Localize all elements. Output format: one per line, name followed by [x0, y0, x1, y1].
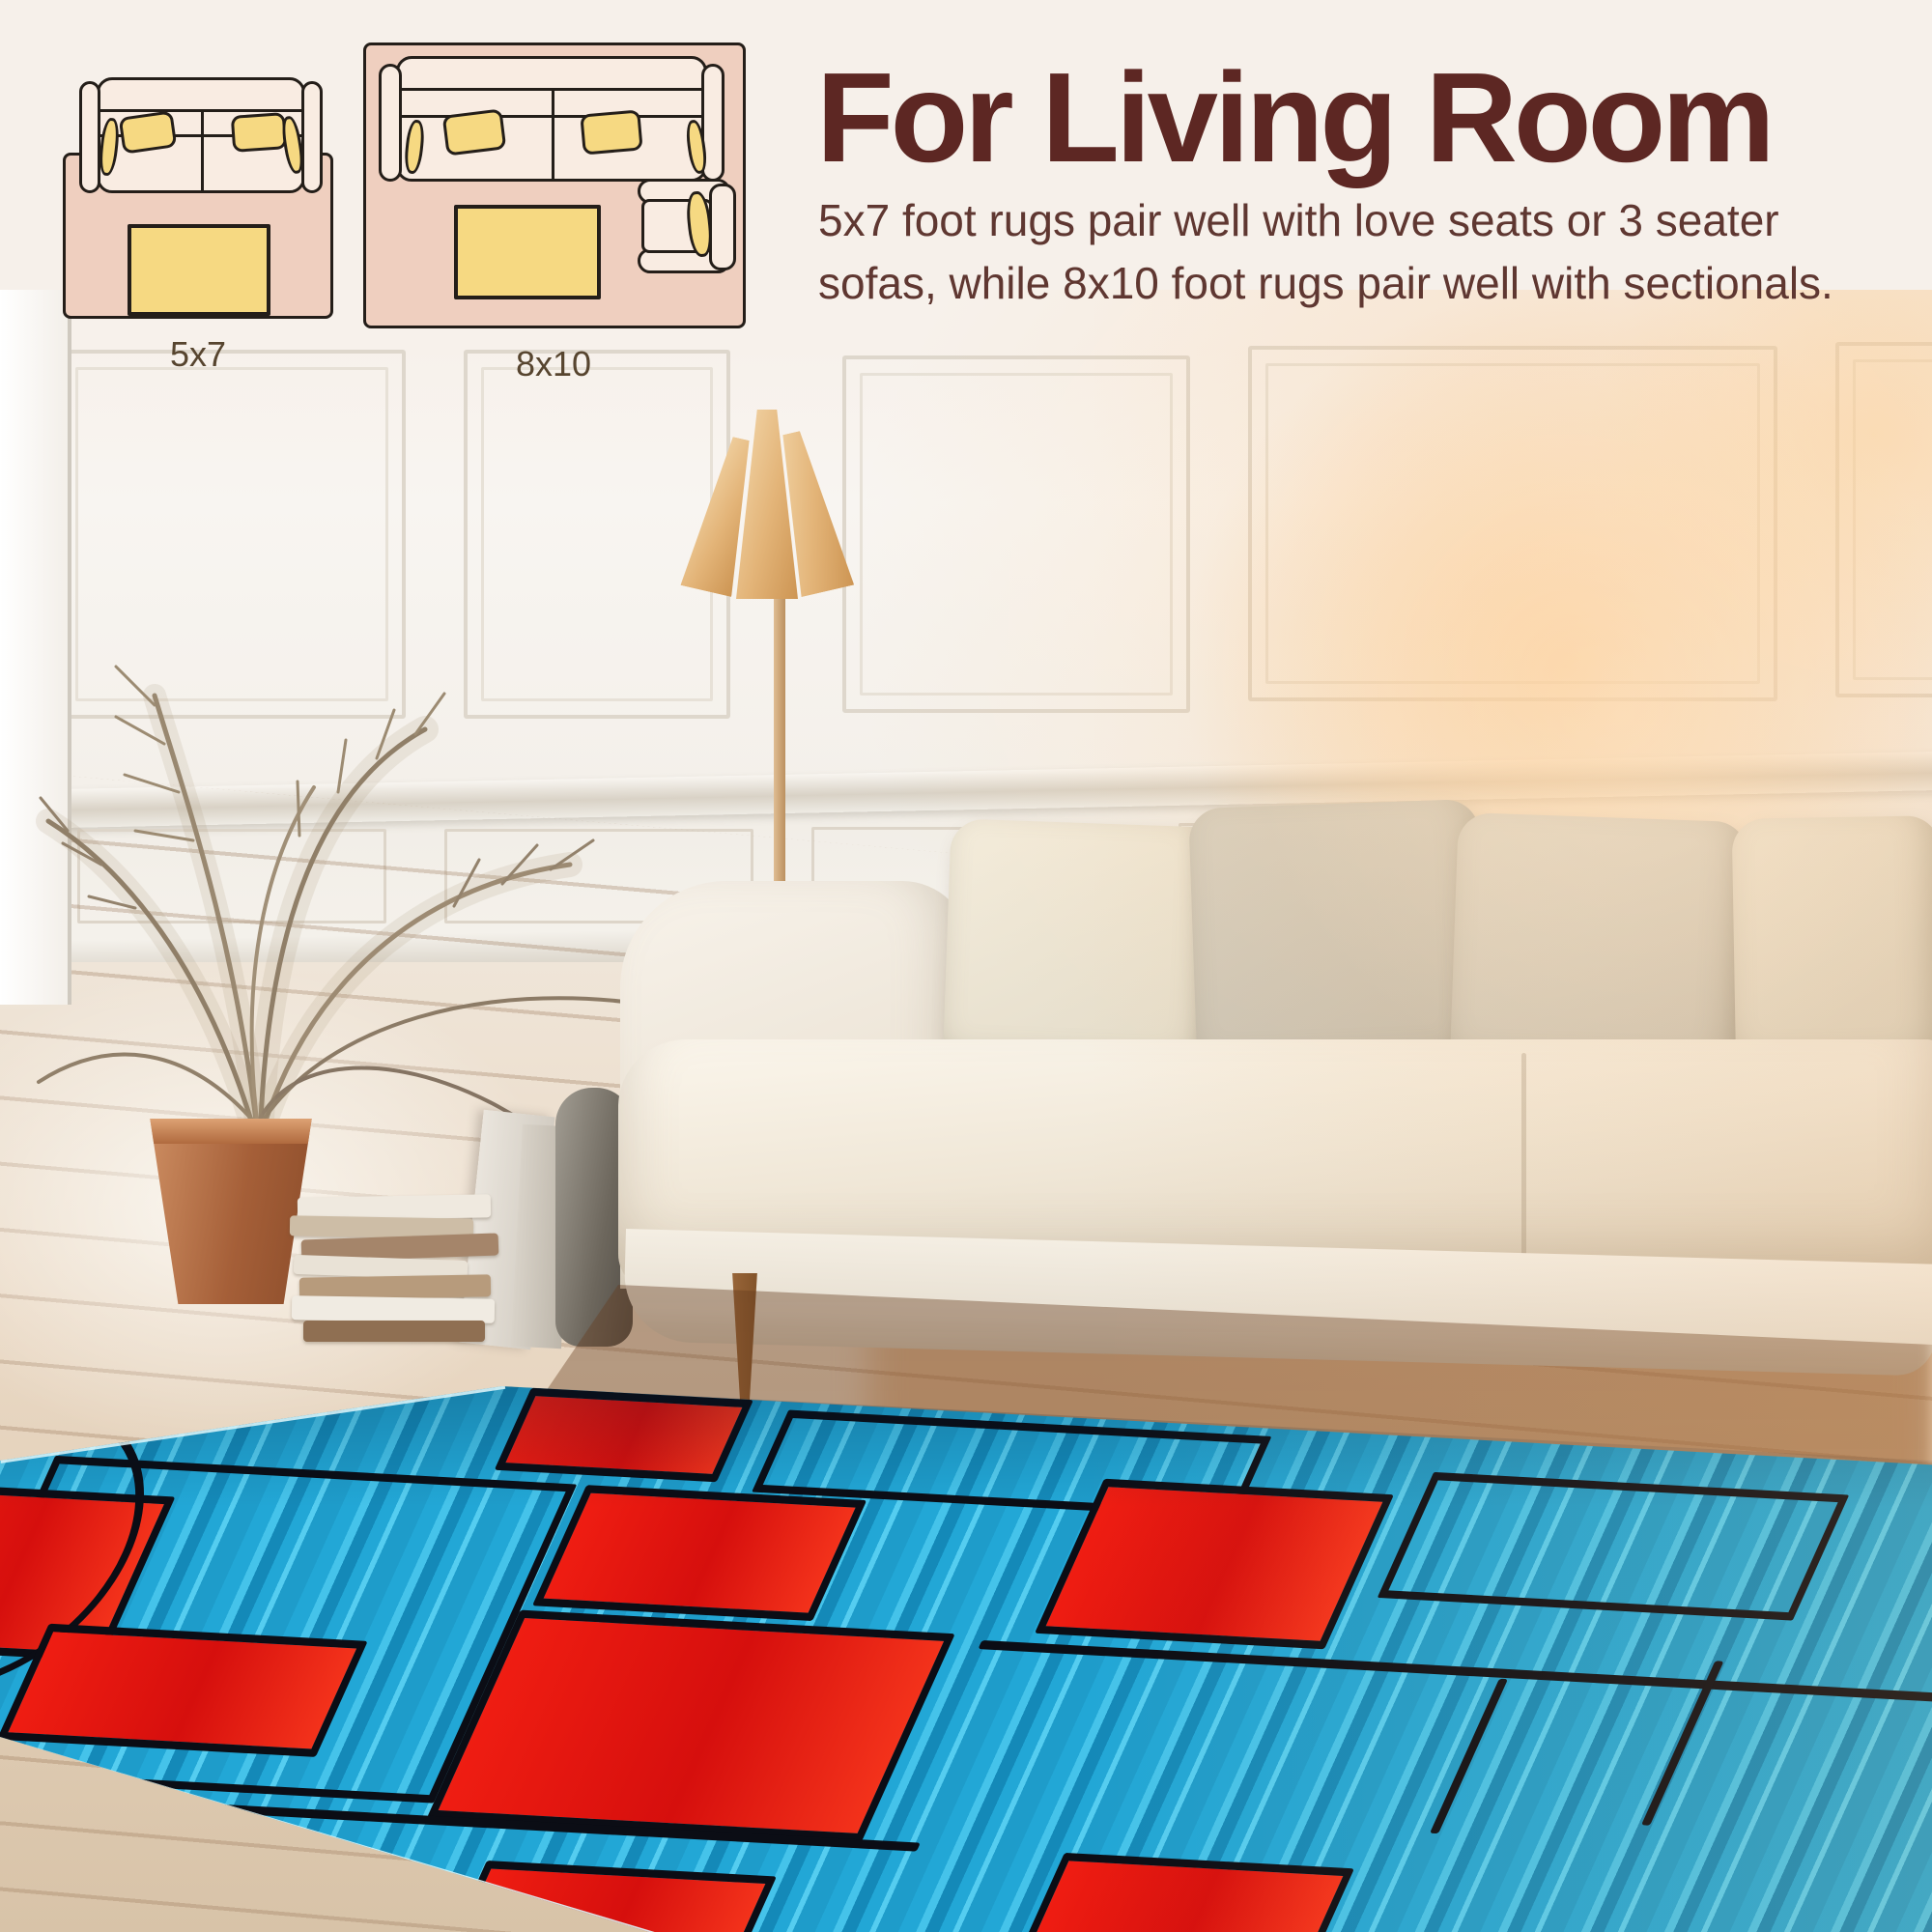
- rug-line: [1430, 1679, 1508, 1833]
- rug-line: [978, 1640, 1932, 1708]
- diagram-pillow: [119, 110, 178, 154]
- rug-red-square: [532, 1485, 867, 1621]
- diagram-8x10-label: 8x10: [471, 344, 636, 384]
- diagram-8x10-sofa: [396, 56, 707, 182]
- diagram-sofa-divider: [201, 109, 204, 192]
- armchair-back: [709, 184, 736, 270]
- diagram-5x7-coffee-table: [128, 224, 270, 316]
- description-line-1: 5x7 foot rugs pair well with love seats …: [818, 189, 1932, 252]
- diagram-pillow: [580, 109, 642, 155]
- rug-outline-rect: [1378, 1472, 1850, 1621]
- diagram-8x10-sofa-arm: [379, 64, 402, 182]
- diagram-5x7-label: 5x7: [116, 334, 280, 375]
- product-infographic: For Living Room 5x7 foot rugs pair well …: [0, 0, 1932, 1932]
- page-description: 5x7 foot rugs pair well with love seats …: [818, 189, 1932, 316]
- diagram-5x7-sofa-arm: [301, 81, 323, 193]
- diagram-sofa-divider: [552, 88, 554, 181]
- diagram-8x10-coffee-table: [454, 205, 601, 299]
- rug-red-square: [956, 1853, 1355, 1932]
- diagram-5x7-sofa-arm: [79, 81, 100, 193]
- description-line-2: sofas, while 8x10 foot rugs pair well wi…: [818, 252, 1932, 315]
- rug-red-square: [495, 1388, 753, 1483]
- rug-red-square: [427, 1610, 955, 1842]
- diagram-pillow: [231, 112, 288, 153]
- page-title: For Living Room: [816, 44, 1918, 190]
- rug-red-square: [0, 1624, 368, 1757]
- diagram-pillow: [442, 108, 507, 156]
- sofa-seat-seam: [1521, 1053, 1526, 1265]
- book-stack: [290, 1196, 512, 1350]
